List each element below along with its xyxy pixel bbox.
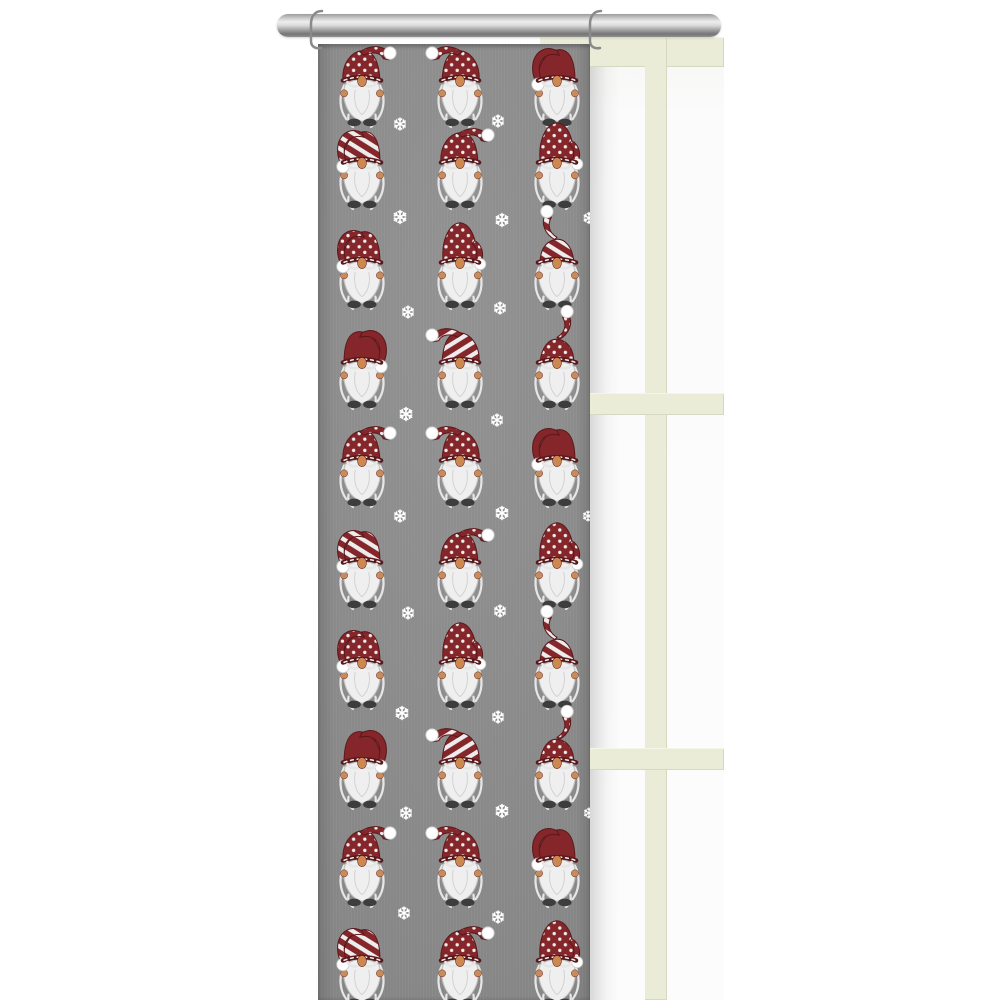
snowflake-icon <box>583 212 590 223</box>
snowflake-icon <box>495 507 508 520</box>
snowflake-icon <box>394 118 406 130</box>
gnome-dotted-tall-curl <box>438 223 485 309</box>
snowflake-icon <box>494 605 506 617</box>
gnome-solid-droop-left <box>532 829 579 907</box>
gnome-striped-droop-left <box>337 131 384 209</box>
snowflake-icon <box>495 805 508 818</box>
snowflake-icon <box>399 408 412 421</box>
snowflake-icon <box>402 607 414 619</box>
gnome-dotted-flop-right <box>438 129 494 209</box>
snowflake-icon <box>394 510 406 522</box>
snowflake-icon <box>398 907 410 919</box>
curtain-pattern-svg <box>318 44 590 1000</box>
curtain-shadow-on-glass <box>590 67 620 1000</box>
snowflake-icon <box>492 115 504 127</box>
snowflake-icon <box>402 306 414 318</box>
window-mullion-vertical <box>645 37 667 1000</box>
gnome-dotted-flop-right <box>340 47 396 127</box>
gnome-solid-droop-right <box>340 731 387 809</box>
snowflake-icon <box>492 711 504 723</box>
gnome-striped-flop-left <box>426 729 482 809</box>
snowflake-icon <box>494 302 506 314</box>
gnome-dotted-tall-curl <box>438 623 485 709</box>
snowflake-icon <box>393 211 406 224</box>
snowflake-icon <box>495 214 508 227</box>
pattern-content <box>337 47 590 1000</box>
snowflake-icon <box>492 911 504 923</box>
gnome-dotted-droop-left <box>337 231 384 309</box>
gnome-solid-droop-left <box>532 49 579 127</box>
gnome-striped-swoop-up <box>535 605 578 709</box>
gnome-dotted-swoop-up-right <box>535 305 578 409</box>
snowflake-icon <box>395 707 408 720</box>
gnome-striped-droop-left <box>337 929 384 1000</box>
gnome-dotted-swoop-up-right <box>535 705 578 809</box>
product-photo: Gray panel curtain with Christmas gnome … <box>0 0 1000 1000</box>
gnome-dotted-droop-left <box>337 631 384 709</box>
gnome-dotted-flop-right <box>340 827 396 907</box>
curtain-panel <box>318 44 590 1000</box>
gnome-dotted-tall-curl <box>535 123 582 209</box>
gnome-striped-swoop-up <box>535 205 578 309</box>
gnome-striped-droop-left <box>337 531 384 609</box>
gnome-striped-flop-left <box>426 329 482 409</box>
gnome-solid-droop-left <box>532 429 579 507</box>
gnome-dotted-flop-left <box>426 427 482 507</box>
gnome-dotted-flop-right <box>340 427 396 507</box>
gnome-dotted-flop-right <box>438 927 494 1000</box>
gnome-dotted-tall-curl <box>535 523 582 609</box>
gnome-dotted-flop-left <box>426 47 482 127</box>
snowflake-icon <box>400 807 412 819</box>
snowflake-icon <box>584 808 590 818</box>
gnome-dotted-flop-left <box>426 827 482 907</box>
snowflake-icon <box>491 414 503 426</box>
gnome-dotted-flop-right <box>438 529 494 609</box>
gnome-solid-droop-right <box>340 331 387 409</box>
snowflake-icon <box>583 511 590 521</box>
curtain-rod <box>277 14 721 37</box>
gnome-dotted-tall-curl <box>535 921 582 1000</box>
